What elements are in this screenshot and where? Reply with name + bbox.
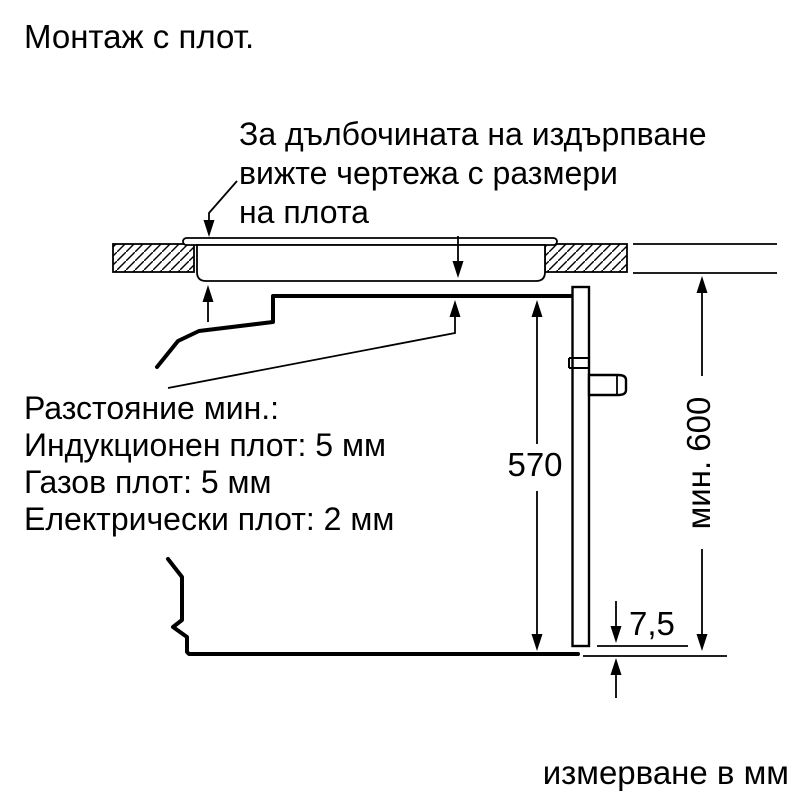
note-leader-arrow xyxy=(204,181,238,237)
note-arrowhead-down-icon xyxy=(204,220,215,237)
cooktop-tub xyxy=(197,245,545,281)
dim75-arrowhead-up-icon xyxy=(611,658,622,675)
dim570-arrowhead-up-icon xyxy=(532,300,543,317)
control-knob xyxy=(589,375,626,395)
oven-top-outline xyxy=(157,296,572,367)
dim75-arrowhead-down-icon xyxy=(611,626,622,643)
dim600-arrowhead-up-icon xyxy=(697,276,708,293)
oven-bottom-outline xyxy=(168,559,578,654)
clearance-list: Разстояние мин.: Индукционен плот: 5 мм … xyxy=(24,390,394,538)
note-line-3: на плота xyxy=(239,193,707,232)
countertop-extension-lines xyxy=(633,244,777,273)
installation-diagram: Монтаж с плот. За дълбочината на издърпв… xyxy=(0,0,800,800)
pullout-depth-note: За дълбочината на издърпване вижте черте… xyxy=(239,115,707,232)
dimension-75-label: 7,5 xyxy=(629,605,675,643)
clearance-item-electric: Електрически плот: 2 мм xyxy=(24,501,394,538)
dimension-600-label: мин. 600 xyxy=(682,377,716,549)
clearance-item-gas: Газов плот: 5 мм xyxy=(24,464,394,501)
dim600-arrowhead-down-icon xyxy=(697,634,708,651)
cooktop xyxy=(183,238,557,281)
clearance-arrowhead-left-icon xyxy=(203,285,214,302)
dim570-arrowhead-down-icon xyxy=(532,634,543,651)
cooktop-top-plate xyxy=(183,238,557,245)
oven-front-frame xyxy=(573,287,590,646)
page-title: Монтаж с плот. xyxy=(24,18,254,56)
note-line-2: вижте чертежа с размери xyxy=(239,154,707,193)
clearance-arrows xyxy=(168,285,461,388)
note-leader-line xyxy=(209,181,237,222)
countertop-left-section xyxy=(113,244,194,272)
clearance-arrowhead-right-icon xyxy=(450,300,461,317)
note-line-1: За дълбочината на издърпване xyxy=(239,115,707,154)
countertop-right-section xyxy=(545,244,627,272)
clearance-item-induction: Индукционен плот: 5 мм xyxy=(24,427,394,464)
units-note: измерване в мм xyxy=(543,754,789,792)
clearance-heading: Разстояние мин.: xyxy=(24,390,394,427)
dimension-570-label: 570 xyxy=(499,446,571,484)
